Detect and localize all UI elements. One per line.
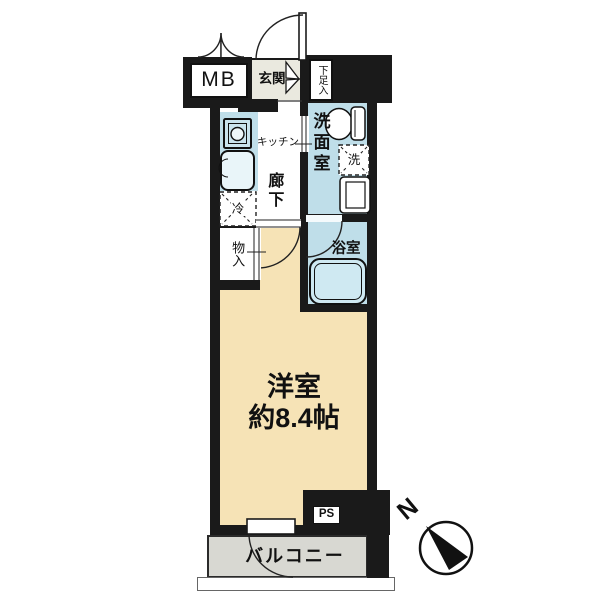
wall — [250, 58, 302, 60]
balcony-label: バルコニー — [215, 546, 375, 567]
wall — [300, 214, 308, 312]
wall — [210, 280, 260, 290]
closet-label: 物入 — [230, 241, 244, 267]
wall — [300, 55, 308, 118]
bathroom-floor — [304, 220, 369, 308]
meter-box-door-icon — [221, 33, 244, 57]
kitchen-counter — [220, 112, 258, 191]
wall — [238, 99, 278, 112]
entrance-door-leaf — [299, 13, 306, 60]
pipe-space: PS — [313, 506, 340, 524]
compass-circle — [420, 522, 472, 574]
shoe-cabinet: 下足入 — [309, 59, 333, 101]
meter-box: MB — [190, 63, 248, 98]
refrigerator-label: 冷 — [231, 202, 246, 216]
meter-box-door-icon — [198, 33, 221, 57]
compass-needle-icon — [426, 526, 468, 570]
floor-plan: MB 玄関 下足入 キッチン 廊下 洗面室 洗 冷 浴室 物入 洋室 約8.4帖… — [0, 0, 600, 600]
compass-north-label: N — [392, 493, 424, 527]
western-room-size: 約8.4帖 — [219, 403, 369, 434]
entrance-door-arc — [256, 15, 303, 60]
wall — [210, 60, 220, 535]
bathroom-label: 浴室 — [323, 241, 369, 258]
balcony-railing — [197, 577, 395, 591]
washer: 洗 — [339, 145, 369, 175]
hallway-label: 廊下 — [264, 172, 282, 210]
wall — [300, 304, 377, 312]
refrigerator: 冷 — [220, 192, 256, 226]
wall — [210, 525, 308, 535]
washer-label: 洗 — [347, 153, 362, 167]
pipe-space-label: PS — [319, 508, 334, 521]
western-room-name: 洋室 — [219, 372, 369, 403]
closet: 物入 — [220, 230, 254, 278]
meter-box-label: MB — [201, 68, 237, 92]
entrance-label: 玄関 — [252, 71, 292, 87]
washroom-label: 洗面室 — [310, 112, 330, 175]
wall — [300, 214, 369, 222]
kitchen-label: キッチン — [257, 136, 299, 148]
western-room-label: 洋室 約8.4帖 — [219, 372, 369, 434]
shoe-cabinet-label: 下足入 — [316, 65, 326, 95]
